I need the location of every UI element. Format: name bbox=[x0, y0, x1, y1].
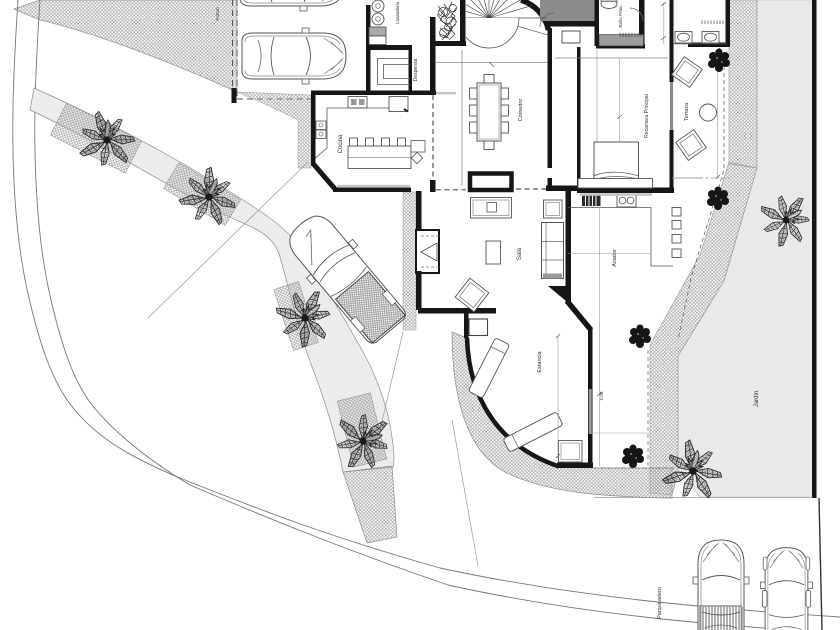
svg-text:Recamara Principal: Recamara Principal bbox=[644, 94, 650, 138]
svg-text:Lavanderia: Lavanderia bbox=[395, 1, 400, 24]
svg-text:Baño Princ.: Baño Princ. bbox=[618, 4, 623, 27]
svg-text:Jardin: Jardin bbox=[754, 391, 760, 407]
svg-text:Parqueadero: Parqueadero bbox=[657, 587, 663, 619]
svg-text:Estancia: Estancia bbox=[537, 351, 543, 373]
svg-text:Sala: Sala bbox=[517, 247, 523, 260]
svg-text:Cocina: Cocina bbox=[338, 134, 344, 153]
svg-text:Comedor: Comedor bbox=[518, 99, 524, 122]
svg-text:Despensa: Despensa bbox=[413, 59, 419, 82]
svg-text:Porton: Porton bbox=[215, 7, 220, 21]
svg-text:Terraza: Terraza bbox=[684, 102, 690, 121]
svg-text:Asador: Asador bbox=[612, 249, 618, 267]
